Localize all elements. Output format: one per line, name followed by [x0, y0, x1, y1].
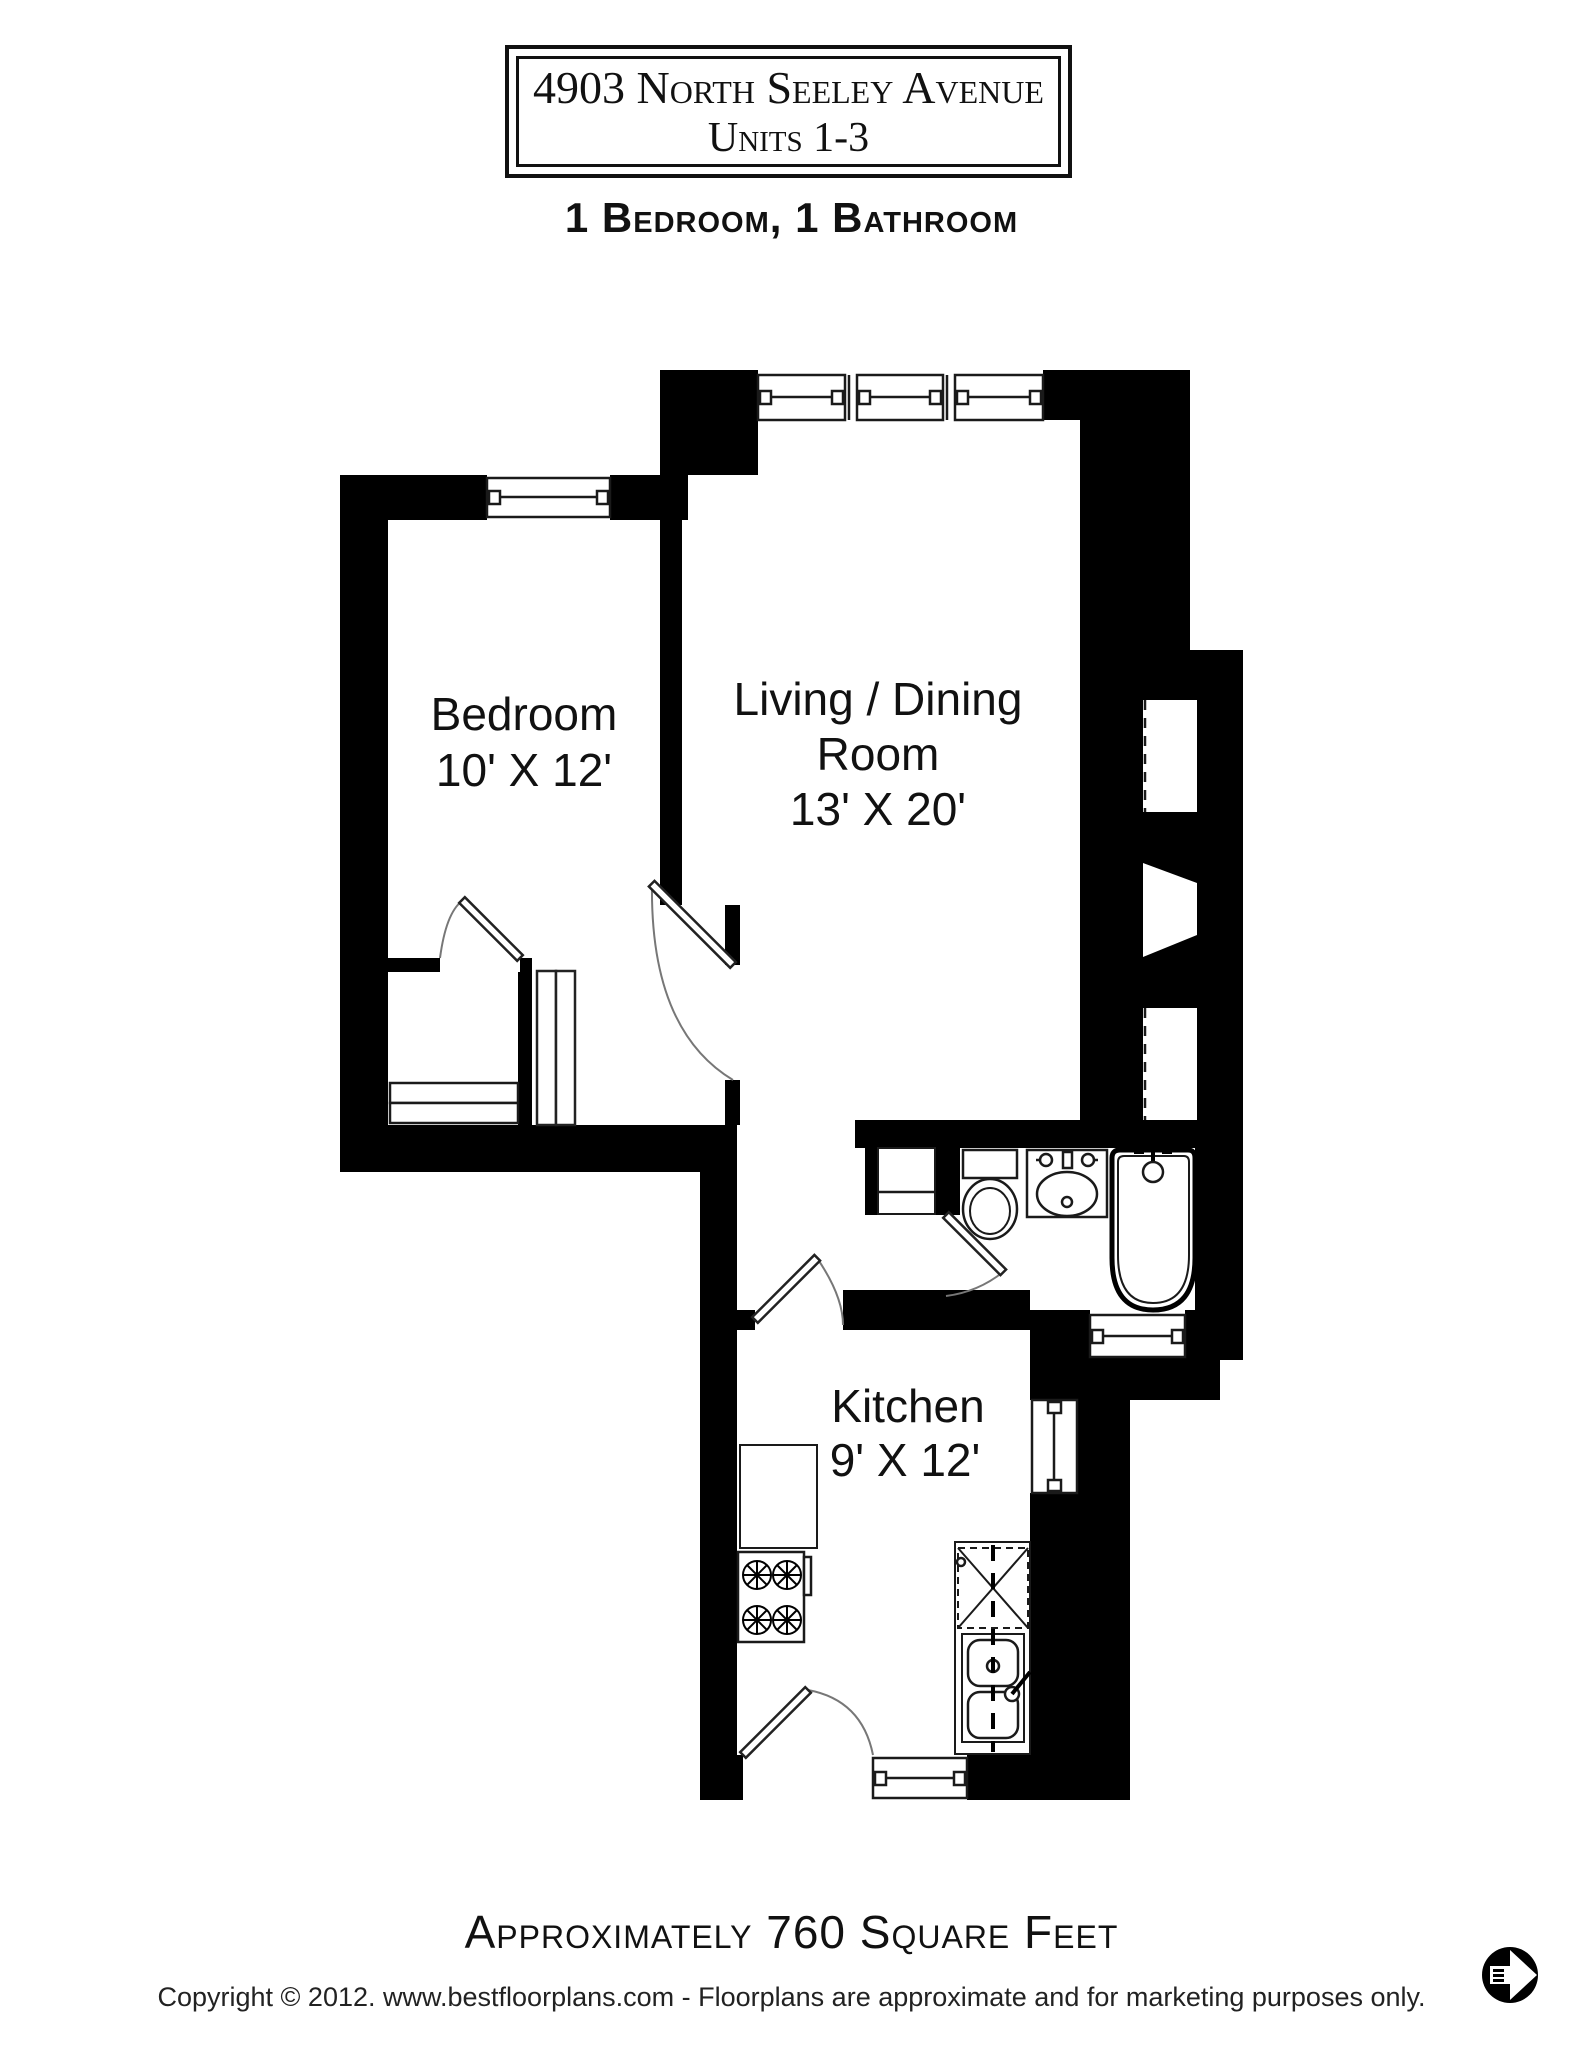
living-room-windows [758, 375, 1043, 420]
closet-doors [537, 971, 575, 1125]
bedroom-name: Bedroom [431, 688, 618, 740]
bedroom-closet-shelves [390, 1083, 518, 1123]
living-name-line2: Room [817, 728, 940, 780]
bedroom-label: Bedroom 10' X 12' [431, 688, 618, 796]
bedroom-door [440, 897, 523, 961]
living-dimensions: 13' X 20' [790, 783, 966, 835]
bathtub-window [1090, 1315, 1185, 1357]
stove [738, 1552, 811, 1642]
kitchen-label: Kitchen 9' X 12' [830, 1380, 985, 1486]
kitchen-bottom-window [873, 1758, 967, 1798]
living-room-door [649, 881, 736, 1080]
floorplan-page: 4903 North Seeley Avenue Units 1-3 1 Bed… [0, 0, 1583, 2048]
kitchen-hall-door [752, 1255, 843, 1325]
toilet [963, 1150, 1017, 1239]
wall-niche-lower [1143, 1008, 1197, 1120]
pedestal-sink [1027, 1150, 1107, 1217]
kitchen-dimensions: 9' X 12' [830, 1434, 981, 1486]
living-dining-label: Living / Dining Room 13' X 20' [734, 673, 1023, 835]
wall-niche-upper [1143, 700, 1197, 812]
living-name-line1: Living / Dining [734, 673, 1023, 725]
approximate-area: Approximately 760 Square Feet [0, 1905, 1583, 1959]
bathtub [1112, 1146, 1195, 1310]
bedroom-window [487, 478, 610, 517]
kitchen-counter [740, 1445, 817, 1548]
floor-plan-drawing: Bedroom 10' X 12' Living / Dining Room 1… [0, 0, 1583, 2048]
kitchen-rear-door [740, 1687, 873, 1758]
kitchen-name: Kitchen [831, 1380, 984, 1432]
copyright-line: Copyright © 2012. www.bestfloorplans.com… [0, 1982, 1583, 2013]
bedroom-dimensions: 10' X 12' [436, 744, 612, 796]
hall-closet [878, 1148, 935, 1214]
kitchen-sink [962, 1634, 1030, 1742]
kitchen-side-window [1032, 1400, 1077, 1493]
